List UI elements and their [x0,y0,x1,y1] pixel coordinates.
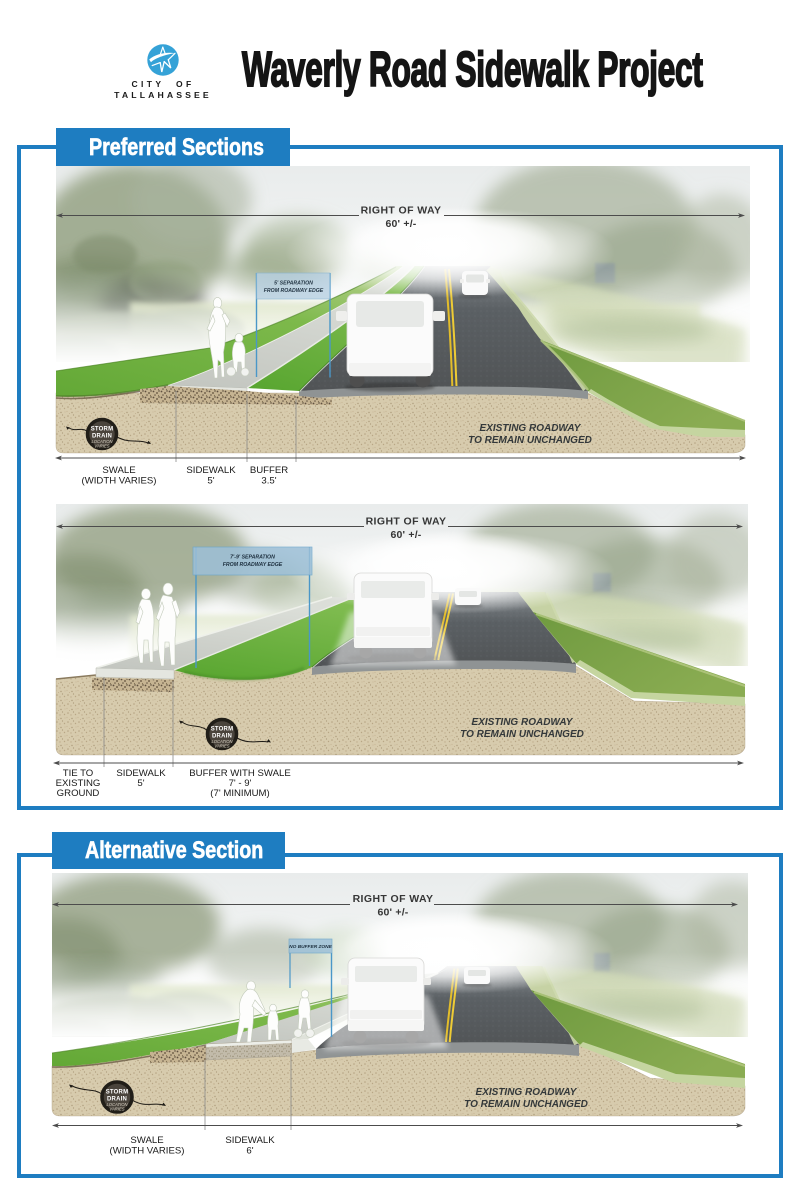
svg-text:(WIDTH VARIES): (WIDTH VARIES) [82,476,157,487]
svg-text:60' +/-: 60' +/- [377,907,408,919]
svg-text:5' SEPARATION: 5' SEPARATION [274,281,313,287]
svg-text:3.5': 3.5' [261,476,276,487]
svg-text:(WIDTH VARIES): (WIDTH VARIES) [110,1146,185,1157]
svg-text:TO REMAIN UNCHANGED: TO REMAIN UNCHANGED [460,729,584,740]
svg-text:SIDEWALK: SIDEWALK [225,1135,275,1146]
svg-text:60' +/-: 60' +/- [390,529,421,541]
svg-text:VARIES: VARIES [214,744,229,749]
svg-text:RIGHT OF WAY: RIGHT OF WAY [353,893,434,905]
svg-text:FROM ROADWAY EDGE: FROM ROADWAY EDGE [264,288,324,294]
svg-text:EXISTING ROADWAY: EXISTING ROADWAY [480,423,582,434]
svg-text:TO REMAIN UNCHANGED: TO REMAIN UNCHANGED [464,1099,588,1110]
svg-text:RIGHT OF WAY: RIGHT OF WAY [361,205,442,217]
svg-text:FROM ROADWAY EDGE: FROM ROADWAY EDGE [223,562,283,568]
svg-text:STORM: STORM [106,1090,129,1096]
svg-text:BUFFER: BUFFER [250,465,288,476]
svg-text:60' +/-: 60' +/- [385,218,416,230]
svg-text:VARIES: VARIES [109,1107,124,1112]
svg-text:NO BUFFER ZONE: NO BUFFER ZONE [289,944,332,950]
svg-text:STORM: STORM [211,727,234,733]
svg-text:EXISTING ROADWAY: EXISTING ROADWAY [472,717,574,728]
svg-text:RIGHT OF WAY: RIGHT OF WAY [366,516,447,528]
svg-text:7'-9' SEPARATION: 7'-9' SEPARATION [230,555,275,561]
svg-text:5': 5' [137,778,144,789]
svg-text:STORM: STORM [91,427,114,433]
svg-text:(7' MINIMUM): (7' MINIMUM) [210,788,269,799]
svg-text:TO REMAIN UNCHANGED: TO REMAIN UNCHANGED [468,435,592,446]
svg-text:SIDEWALK: SIDEWALK [186,465,236,476]
svg-text:5': 5' [207,476,214,487]
svg-text:EXISTING ROADWAY: EXISTING ROADWAY [476,1087,578,1098]
svg-text:SWALE: SWALE [130,1135,163,1146]
svg-text:SWALE: SWALE [102,465,135,476]
svg-text:VARIES: VARIES [94,444,109,449]
svg-text:GROUND: GROUND [57,788,100,799]
svg-text:6': 6' [246,1146,253,1157]
